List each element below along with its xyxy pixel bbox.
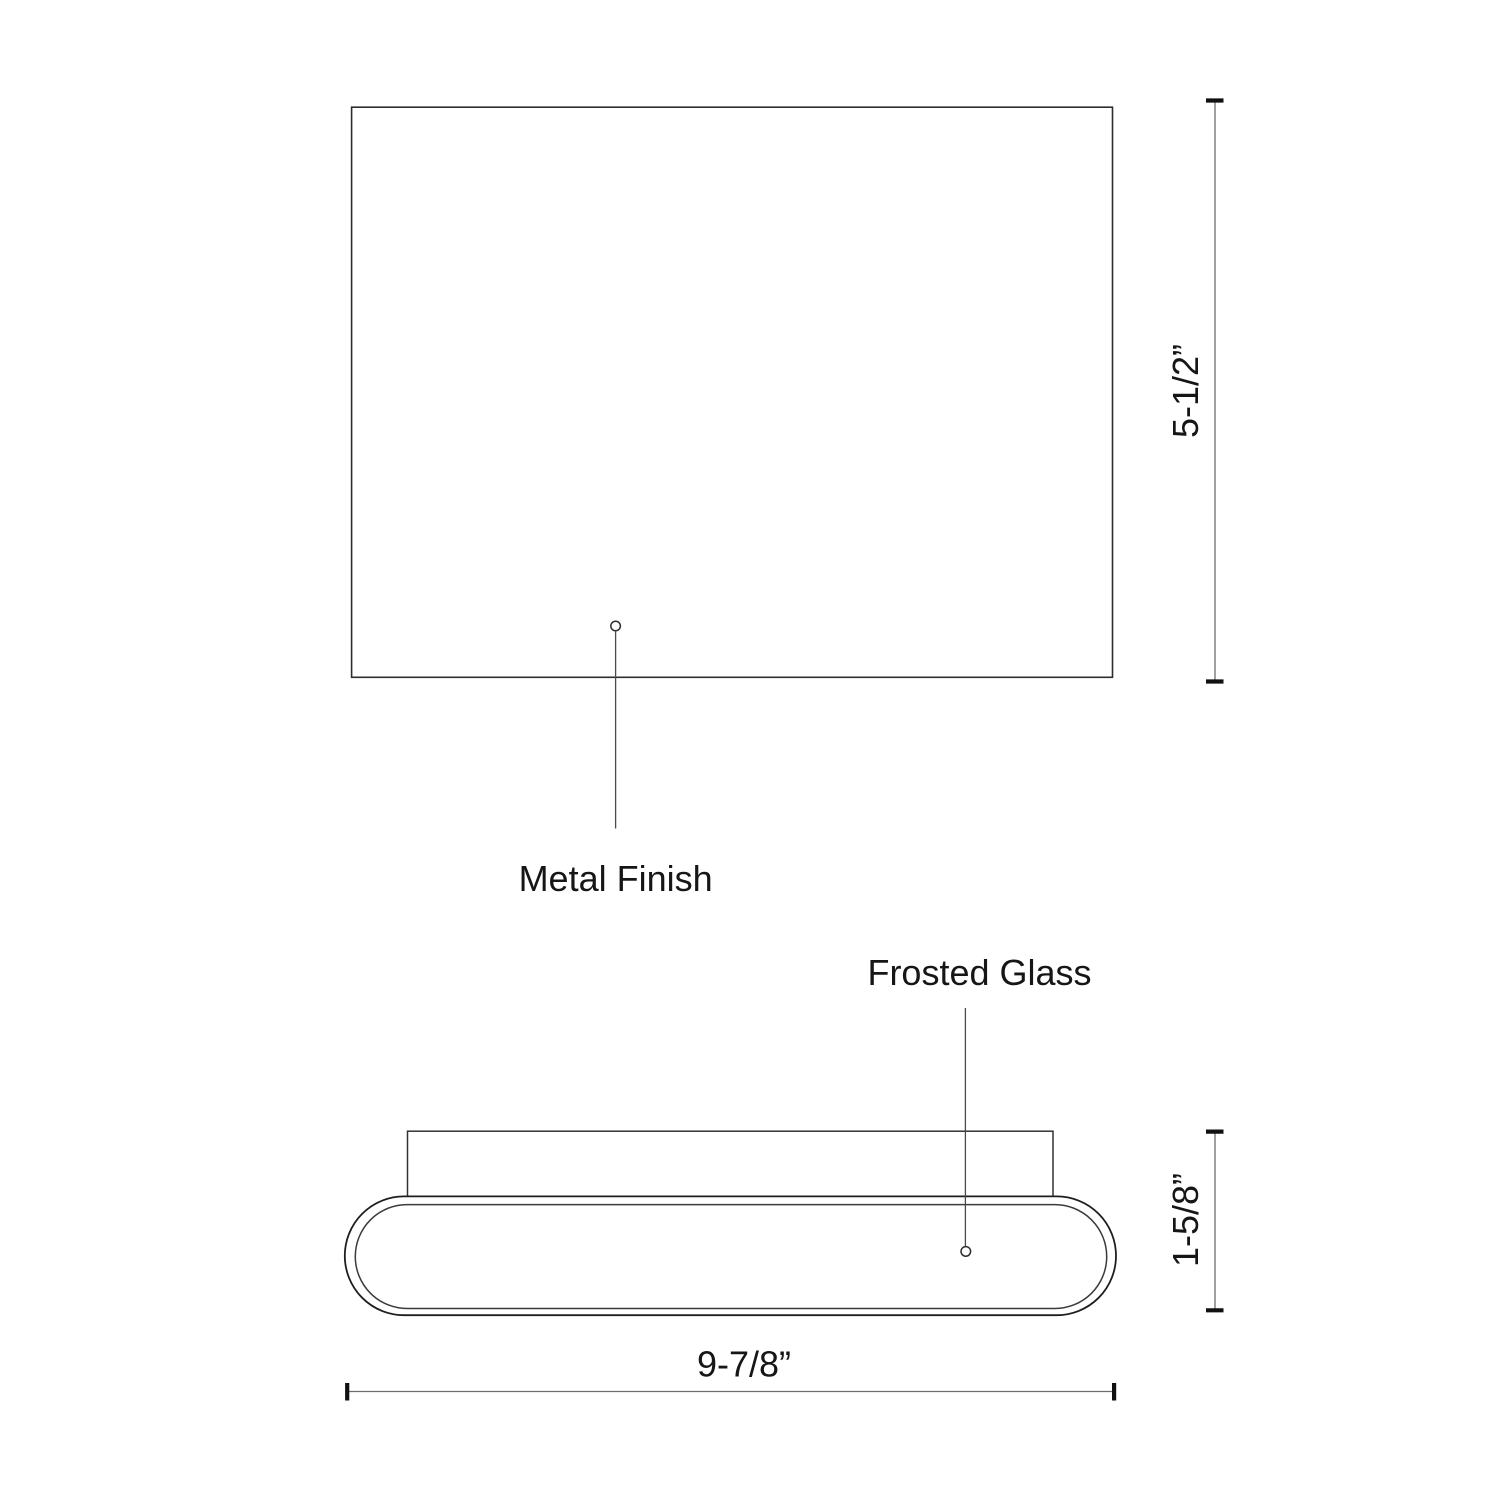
svg-text:1-5/8”: 1-5/8” <box>1165 1173 1206 1267</box>
svg-text:Frosted Glass: Frosted Glass <box>867 952 1091 993</box>
svg-text:Metal Finish: Metal Finish <box>519 858 713 899</box>
svg-text:5-1/2”: 5-1/2” <box>1165 344 1206 438</box>
svg-text:9-7/8”: 9-7/8” <box>697 1344 791 1385</box>
